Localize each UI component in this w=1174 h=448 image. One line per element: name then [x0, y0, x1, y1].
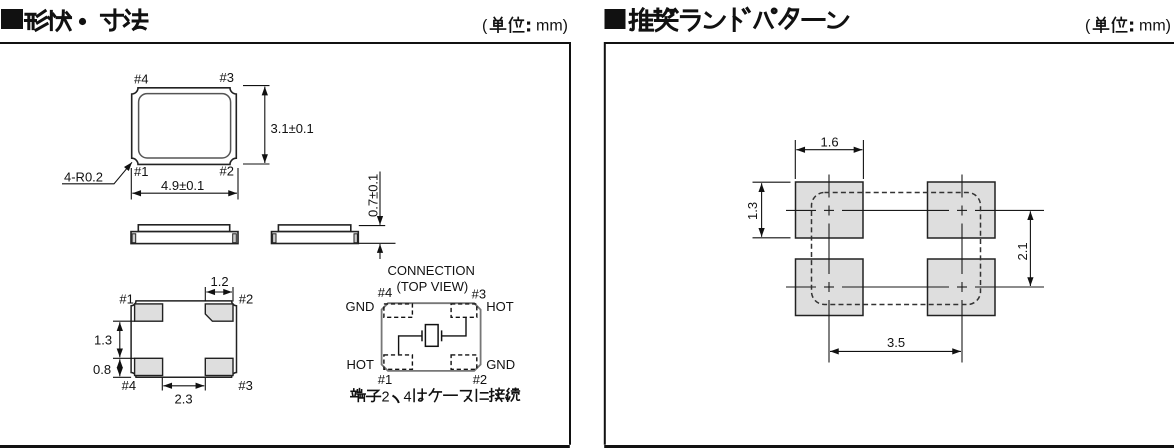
svg-text:(: (	[482, 18, 488, 35]
svg-text:#4: #4	[134, 72, 148, 87]
svg-text:1.3: 1.3	[94, 333, 112, 348]
svg-text:HOT: HOT	[486, 299, 514, 314]
svg-text:(TOP VIEW): (TOP VIEW)	[397, 279, 469, 294]
svg-text:mm): mm)	[536, 18, 568, 35]
svg-text:#3: #3	[472, 287, 486, 302]
svg-text:1.6: 1.6	[821, 134, 839, 149]
svg-text:4.9±0.1: 4.9±0.1	[161, 178, 204, 193]
svg-text:#2: #2	[239, 291, 253, 306]
svg-text:3.1±0.1: 3.1±0.1	[271, 121, 314, 136]
svg-text:4: 4	[404, 390, 412, 406]
svg-text:3.5: 3.5	[887, 335, 905, 350]
svg-text:#4: #4	[378, 285, 392, 300]
svg-text:1.3: 1.3	[745, 202, 760, 220]
svg-text:#3: #3	[220, 70, 234, 85]
svg-text:0.7±0.1: 0.7±0.1	[365, 174, 380, 217]
svg-text:#1: #1	[134, 164, 148, 179]
svg-text:#1: #1	[119, 291, 133, 306]
svg-text:2: 2	[382, 390, 390, 406]
svg-text:1.2: 1.2	[211, 274, 229, 289]
svg-text:0.8: 0.8	[93, 362, 111, 377]
svg-text:GND: GND	[486, 357, 515, 372]
svg-text:(: (	[1085, 18, 1091, 35]
svg-text:mm): mm)	[1139, 18, 1171, 35]
svg-text:2.3: 2.3	[175, 392, 193, 407]
svg-text:#3: #3	[238, 378, 252, 393]
svg-text:#4: #4	[122, 378, 136, 393]
svg-text:HOT: HOT	[347, 357, 375, 372]
svg-text:#2: #2	[473, 372, 487, 387]
svg-text:2.1: 2.1	[1015, 242, 1030, 260]
svg-text:GND: GND	[346, 299, 375, 314]
svg-text:4-R0.2: 4-R0.2	[64, 170, 103, 185]
svg-text:#2: #2	[220, 164, 234, 179]
svg-text:#1: #1	[378, 372, 392, 387]
svg-text:CONNECTION: CONNECTION	[388, 263, 475, 278]
